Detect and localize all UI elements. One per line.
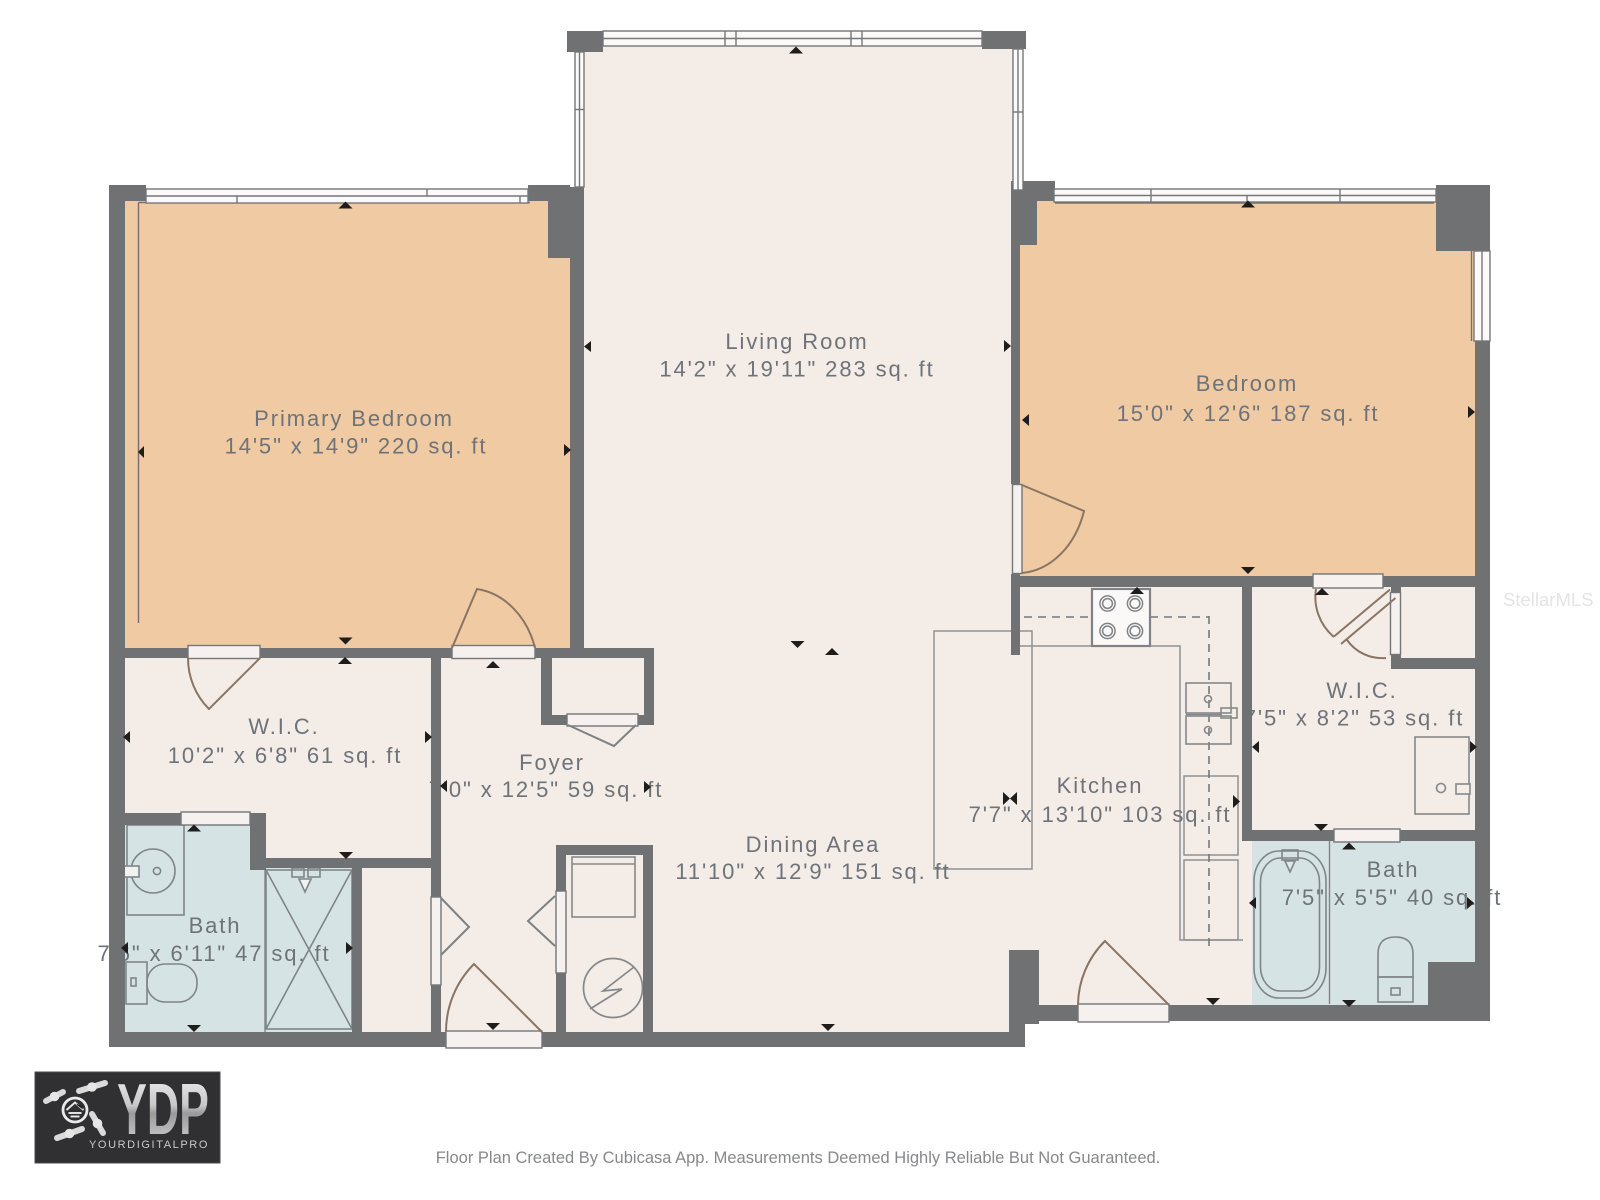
svg-text:15'0" x 12'6" 187 sq. ft: 15'0" x 12'6" 187 sq. ft (1117, 401, 1380, 426)
svg-text:Bath: Bath (1367, 857, 1420, 882)
svg-text:W.I.C.: W.I.C. (1326, 678, 1397, 703)
svg-text:W.I.C.: W.I.C. (248, 714, 319, 739)
svg-text:7'6" x 6'11" 47 sq. ft: 7'6" x 6'11" 47 sq. ft (98, 941, 331, 966)
svg-text:YDP: YDP (117, 1069, 209, 1150)
svg-text:14'2" x 19'11" 283 sq. ft: 14'2" x 19'11" 283 sq. ft (659, 357, 934, 382)
svg-text:StellarMLS: StellarMLS (1503, 589, 1593, 610)
svg-text:Bedroom: Bedroom (1196, 371, 1299, 396)
svg-text:Living Room: Living Room (725, 329, 868, 354)
svg-text:Primary Bedroom: Primary Bedroom (254, 406, 454, 431)
svg-text:7'5" x 8'2" 53 sq. ft: 7'5" x 8'2" 53 sq. ft (1244, 706, 1464, 731)
svg-text:14'5" x 14'9" 220 sq. ft: 14'5" x 14'9" 220 sq. ft (225, 434, 488, 459)
svg-text:Kitchen: Kitchen (1057, 773, 1144, 798)
svg-text:Floor Plan Created By Cubicasa: Floor Plan Created By Cubicasa App. Meas… (436, 1149, 1161, 1167)
svg-text:7'0" x 12'5" 59 sq. ft: 7'0" x 12'5" 59 sq. ft (429, 777, 664, 802)
svg-text:Bath: Bath (189, 913, 242, 938)
svg-text:11'10" x 12'9" 151 sq. ft: 11'10" x 12'9" 151 sq. ft (675, 859, 950, 884)
svg-text:10'2" x 6'8" 61 sq. ft: 10'2" x 6'8" 61 sq. ft (168, 743, 403, 768)
svg-text:YOURDIGITALPRO: YOURDIGITALPRO (89, 1139, 209, 1151)
svg-text:7'7" x 13'10" 103 sq. ft: 7'7" x 13'10" 103 sq. ft (969, 802, 1232, 827)
svg-text:Foyer: Foyer (519, 750, 585, 775)
svg-text:Dining Area: Dining Area (746, 832, 881, 857)
